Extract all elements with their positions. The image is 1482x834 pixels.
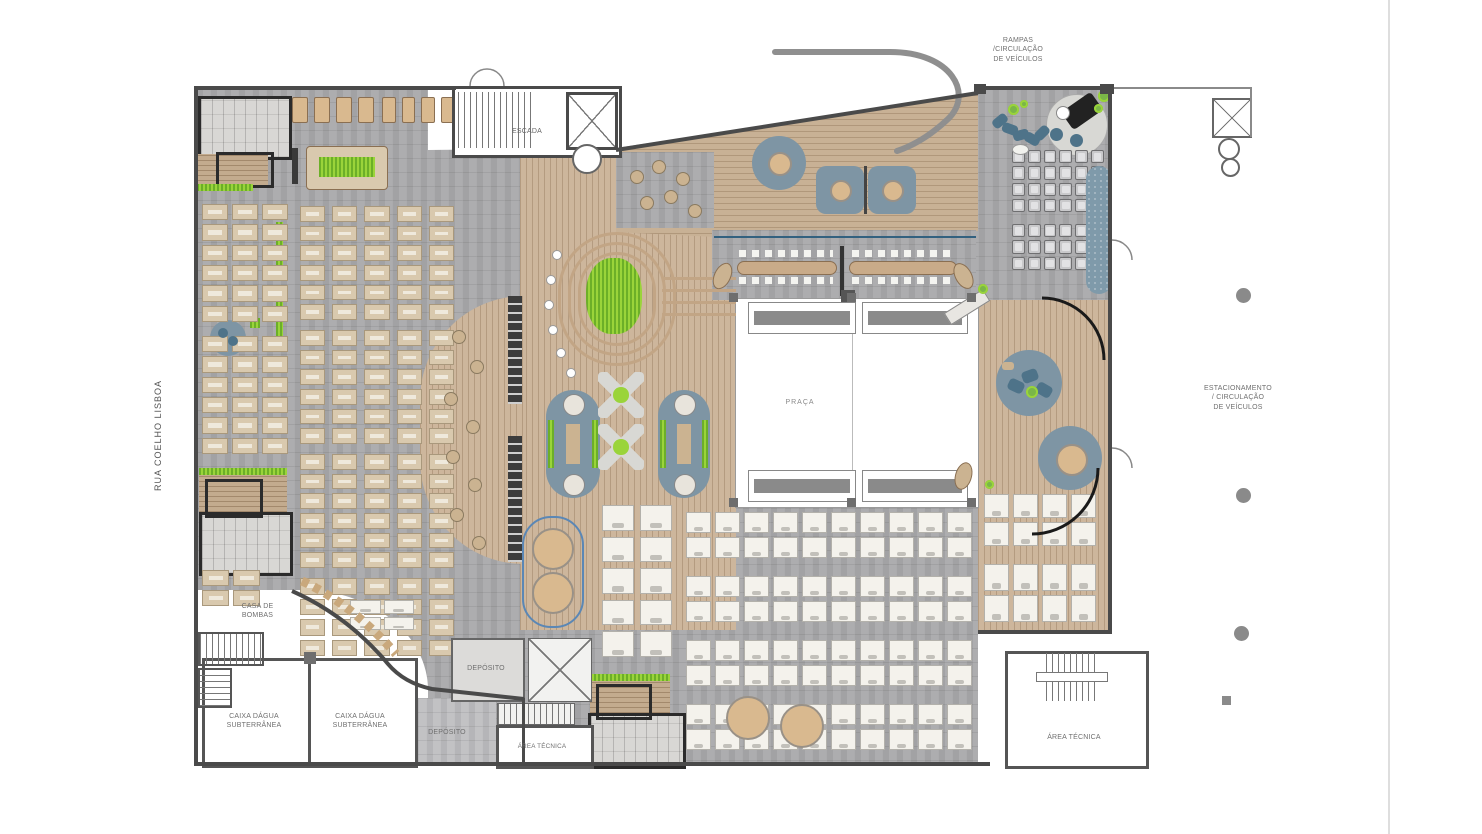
desk	[364, 578, 389, 595]
blue-oval-lounge	[546, 390, 600, 498]
desk	[429, 493, 454, 509]
desk	[364, 245, 389, 261]
desk	[1013, 595, 1038, 622]
desk	[918, 640, 943, 661]
desk	[602, 600, 634, 626]
desk	[640, 568, 672, 594]
desk	[332, 513, 357, 529]
auditorium-seat	[1059, 183, 1072, 196]
wc-core-bottom	[588, 713, 686, 769]
technical-right-label: ÁREA TÉCNICA	[1018, 733, 1130, 742]
desk	[860, 512, 885, 533]
desk	[429, 474, 454, 490]
cafe-table	[652, 160, 666, 174]
desk	[397, 285, 422, 301]
desk	[364, 552, 389, 568]
desk	[262, 285, 288, 301]
cafe-table	[472, 536, 486, 550]
round-dining-table	[726, 696, 770, 740]
auditorium-seat	[1059, 199, 1072, 212]
desk	[802, 537, 827, 558]
desk	[889, 576, 914, 597]
desk	[918, 512, 943, 533]
desk	[831, 601, 856, 622]
desk	[384, 617, 415, 631]
desk	[397, 552, 422, 568]
desk	[332, 493, 357, 509]
desk	[332, 474, 357, 490]
cafe-table	[664, 190, 678, 204]
desk	[831, 640, 856, 661]
auditorium-seat	[1012, 199, 1025, 212]
corner-block-top-right	[1100, 84, 1114, 94]
water-tank-label-right: CAIXA DÁGUA SUBTERRÂNEA	[317, 712, 403, 731]
desk	[397, 409, 422, 425]
desk	[364, 409, 389, 425]
desk	[918, 729, 943, 750]
desk-grid	[686, 512, 972, 558]
desk	[889, 512, 914, 533]
desk	[202, 306, 228, 322]
meeting-table-left	[734, 250, 838, 284]
cafe-table	[676, 172, 690, 186]
desk	[364, 206, 389, 222]
desk	[202, 336, 228, 352]
desk	[918, 665, 943, 686]
wc-core-top-left	[198, 96, 292, 160]
desk	[984, 595, 1009, 622]
pebble-table	[1012, 144, 1029, 155]
desk	[918, 704, 943, 725]
planter-strip	[197, 184, 253, 191]
desk	[202, 224, 228, 240]
desk-grid	[202, 570, 260, 606]
cafe-table	[466, 420, 480, 434]
plant	[978, 284, 988, 294]
desk	[300, 389, 325, 405]
desk	[831, 576, 856, 597]
desk	[686, 576, 711, 597]
side-table	[1002, 362, 1014, 370]
desk	[262, 377, 288, 393]
desk	[947, 640, 972, 661]
desk	[429, 369, 454, 385]
corner-block-ramp	[974, 84, 986, 94]
desk	[332, 265, 357, 281]
media-wall	[292, 148, 298, 184]
table-bar	[566, 424, 580, 464]
desk	[831, 537, 856, 558]
phone-booth	[292, 97, 308, 123]
desk	[1042, 564, 1067, 591]
door-arc	[487, 69, 504, 86]
desk	[889, 640, 914, 661]
desk	[300, 493, 325, 509]
locker-wall	[508, 296, 522, 404]
glass-divider-line	[714, 236, 976, 238]
wall-top-right	[976, 86, 1112, 90]
stool	[548, 325, 558, 335]
desk	[232, 224, 258, 240]
desk	[332, 389, 357, 405]
desk	[202, 204, 228, 220]
desk	[918, 601, 943, 622]
desk	[364, 640, 389, 657]
auditorium-seat	[1012, 224, 1025, 237]
desk	[889, 704, 914, 725]
wall-bottom	[194, 762, 990, 766]
desk	[364, 533, 389, 549]
desk	[1042, 522, 1067, 546]
column	[847, 498, 856, 507]
column-round	[1236, 288, 1251, 303]
desk	[397, 513, 422, 529]
desk	[773, 537, 798, 558]
round-table	[563, 394, 585, 416]
desk	[715, 601, 740, 622]
desk	[802, 640, 827, 661]
desk	[332, 552, 357, 568]
plant	[1020, 100, 1028, 108]
desk	[831, 729, 856, 750]
desk	[332, 226, 357, 242]
wall-depot-edge	[522, 698, 525, 764]
stairs-label: ESCADA	[492, 127, 562, 136]
desk	[397, 493, 422, 509]
escalator-bottom-left	[748, 470, 856, 502]
desk-grid	[984, 494, 1096, 546]
desk	[744, 512, 769, 533]
table-bar	[677, 424, 691, 464]
desk	[262, 397, 288, 413]
auditorium-seat	[1012, 183, 1025, 196]
desk	[397, 454, 422, 470]
desk	[364, 285, 389, 301]
desk	[332, 206, 357, 222]
auditorium-seat	[1028, 183, 1041, 196]
plaza-label: PRAÇA	[770, 398, 830, 407]
desk-grid	[984, 564, 1096, 622]
desk	[300, 285, 325, 301]
phone-booth	[358, 97, 374, 123]
desk	[686, 665, 711, 686]
desk	[202, 417, 228, 433]
desk	[429, 409, 454, 425]
desk	[397, 369, 422, 385]
storage-upper-label: DEPÓSITO	[451, 664, 521, 673]
column-round	[1236, 488, 1251, 503]
banquette-lawn	[586, 258, 642, 334]
column-square	[1222, 696, 1231, 705]
desk	[947, 512, 972, 533]
phone-booth	[402, 97, 416, 123]
ramps-annotation: RAMPAS /CIRCULAÇÃO DE VEÍCULOS	[972, 36, 1064, 64]
auditorium-seat	[1028, 257, 1041, 270]
desk	[300, 474, 325, 490]
desk	[715, 537, 740, 558]
wc-pne-room	[216, 152, 274, 188]
desk	[984, 494, 1009, 518]
desk	[715, 640, 740, 661]
armchair	[1050, 128, 1063, 141]
cafe-table	[452, 330, 466, 344]
parking-circle	[1218, 138, 1240, 160]
desk	[1071, 522, 1096, 546]
wc-core-mid-left	[199, 512, 293, 576]
wall-top-left	[194, 86, 456, 90]
desk	[947, 576, 972, 597]
desk	[802, 665, 827, 686]
desk	[233, 570, 260, 586]
desk	[202, 285, 228, 301]
desk	[364, 474, 389, 490]
desk	[640, 537, 672, 563]
desk-grid	[350, 600, 414, 630]
desk	[640, 631, 672, 657]
desk	[332, 350, 357, 366]
desk	[860, 601, 885, 622]
desk	[860, 537, 885, 558]
desk	[429, 428, 454, 444]
desk	[860, 640, 885, 661]
desk	[1071, 595, 1096, 622]
armchair	[228, 336, 238, 346]
column	[967, 293, 976, 302]
desk	[429, 330, 454, 346]
desk-grid	[202, 204, 288, 322]
desk	[232, 306, 258, 322]
armchair	[1070, 134, 1083, 147]
auditorium-seat	[1044, 224, 1057, 237]
x-desk-cluster	[598, 424, 644, 470]
desk	[773, 576, 798, 597]
desk	[397, 389, 422, 405]
wall-left-low	[194, 590, 198, 766]
desk	[364, 265, 389, 281]
desk	[300, 533, 325, 549]
round-lounge-rug	[996, 350, 1062, 416]
parking-circle	[1221, 158, 1240, 177]
plant	[1026, 386, 1038, 398]
phone-booth	[382, 97, 396, 123]
desk	[429, 304, 454, 320]
wall-right-slab	[1108, 88, 1112, 634]
column	[967, 498, 976, 507]
desk	[429, 245, 454, 261]
street-label: RUA COELHO LISBOA	[152, 370, 174, 500]
meeting-table-moss	[306, 146, 388, 190]
wc-pne-room	[205, 479, 263, 518]
desk	[429, 226, 454, 242]
desk	[947, 537, 972, 558]
cafe-table	[446, 450, 460, 464]
desk	[889, 665, 914, 686]
wall-parking-right	[1250, 87, 1252, 137]
desk-grid	[300, 454, 454, 568]
desk	[429, 599, 454, 616]
wall-meeting-divider	[840, 246, 844, 296]
cafe-table	[470, 360, 484, 374]
desk	[397, 350, 422, 366]
desk	[332, 428, 357, 444]
escalator-bottom-right	[862, 470, 968, 502]
desk	[602, 631, 634, 657]
desk	[1013, 564, 1038, 591]
desk	[602, 537, 634, 563]
desk	[773, 665, 798, 686]
auditorium-seat	[1044, 150, 1057, 163]
auditorium-seat	[1075, 150, 1088, 163]
desk	[350, 600, 381, 614]
desk	[773, 512, 798, 533]
desk	[397, 578, 422, 595]
desk	[429, 206, 454, 222]
desk	[232, 356, 258, 372]
auditorium-seat	[1044, 183, 1057, 196]
auditorium-seat	[1044, 240, 1057, 253]
desk	[1013, 522, 1038, 546]
desk	[860, 576, 885, 597]
desk	[918, 537, 943, 558]
desk	[300, 206, 325, 222]
desk	[397, 265, 422, 281]
desk	[1042, 595, 1067, 622]
desk	[831, 512, 856, 533]
round-table	[830, 180, 852, 202]
auditorium-seat	[1044, 199, 1057, 212]
desk	[831, 704, 856, 725]
wall-top-parking	[1112, 87, 1252, 89]
round-table	[882, 180, 904, 202]
desk	[802, 512, 827, 533]
phone-booth	[421, 97, 435, 123]
desk	[262, 306, 288, 322]
desk	[429, 552, 454, 568]
desk	[202, 397, 228, 413]
escalator-top-left	[748, 302, 856, 334]
desk	[802, 601, 827, 622]
desk	[1071, 564, 1096, 591]
desk	[262, 336, 288, 352]
desk	[202, 377, 228, 393]
desk	[364, 454, 389, 470]
round-table	[1056, 106, 1070, 120]
desk	[947, 704, 972, 725]
desk	[202, 245, 228, 261]
desk	[397, 330, 422, 346]
auditorium-seat	[1028, 150, 1041, 163]
cafe-table	[444, 392, 458, 406]
desk	[232, 204, 258, 220]
desk	[715, 512, 740, 533]
water-tank-label-left: CAIXA DÁGUA SUBTERRÂNEA	[211, 712, 297, 731]
desk	[364, 369, 389, 385]
plant	[985, 480, 994, 489]
desk	[1013, 494, 1038, 518]
desk	[429, 619, 454, 636]
desk	[686, 640, 711, 661]
desk-grid	[602, 505, 672, 657]
escalator-block	[528, 638, 592, 702]
plant	[1008, 104, 1019, 115]
desk	[744, 537, 769, 558]
desk	[602, 568, 634, 594]
desk	[332, 409, 357, 425]
shaft-circle	[572, 144, 602, 174]
desk	[300, 428, 325, 444]
desk	[262, 224, 288, 240]
column	[729, 293, 738, 302]
armchair	[218, 328, 228, 338]
desk	[397, 428, 422, 444]
planter-strip	[590, 674, 670, 681]
desk	[232, 245, 258, 261]
pump-house-label: CASA DE BOMBAS	[215, 602, 300, 621]
page-divider-line	[1388, 0, 1390, 834]
round-table	[674, 394, 696, 416]
desk	[744, 576, 769, 597]
desk	[889, 537, 914, 558]
auditorium-seat	[1059, 240, 1072, 253]
desk	[744, 640, 769, 661]
auditorium-seat	[1091, 150, 1104, 163]
stool	[552, 250, 562, 260]
parking-elevator	[1212, 98, 1252, 138]
storage-lower-label: DEPÓSITO	[398, 728, 496, 737]
desk	[1042, 494, 1067, 518]
desk	[300, 409, 325, 425]
desk	[364, 350, 389, 366]
desk-grid	[202, 336, 288, 454]
bench-green	[702, 420, 708, 468]
desk	[300, 578, 325, 595]
desk	[262, 438, 288, 454]
wall-left	[194, 86, 198, 592]
desk	[640, 505, 672, 531]
technical-center-label: ÁREA TÉCNICA	[498, 743, 586, 752]
auditorium-seat	[1059, 224, 1072, 237]
column	[729, 498, 738, 507]
cafe-table	[640, 196, 654, 210]
desk	[332, 578, 357, 595]
desk	[860, 665, 885, 686]
stool	[544, 300, 554, 310]
desk-grid	[686, 576, 972, 622]
wc-pne-room	[596, 684, 652, 720]
desk	[429, 533, 454, 549]
blue-oval-lounge	[658, 390, 710, 498]
desk	[860, 729, 885, 750]
bench-green	[660, 420, 666, 468]
desk	[300, 619, 325, 636]
locker-wall	[508, 436, 522, 562]
desk	[364, 493, 389, 509]
moss-centerpiece	[319, 157, 375, 177]
desk	[232, 438, 258, 454]
desk	[947, 665, 972, 686]
cafe-table	[630, 170, 644, 184]
phone-booth	[336, 97, 352, 123]
escalator-block	[497, 703, 575, 725]
phone-booth-row	[382, 97, 454, 123]
column	[847, 293, 856, 302]
desk	[397, 640, 422, 657]
door-arc	[1112, 448, 1132, 468]
desk	[202, 356, 228, 372]
desk	[984, 564, 1009, 591]
desk	[364, 389, 389, 405]
desk	[364, 304, 389, 320]
